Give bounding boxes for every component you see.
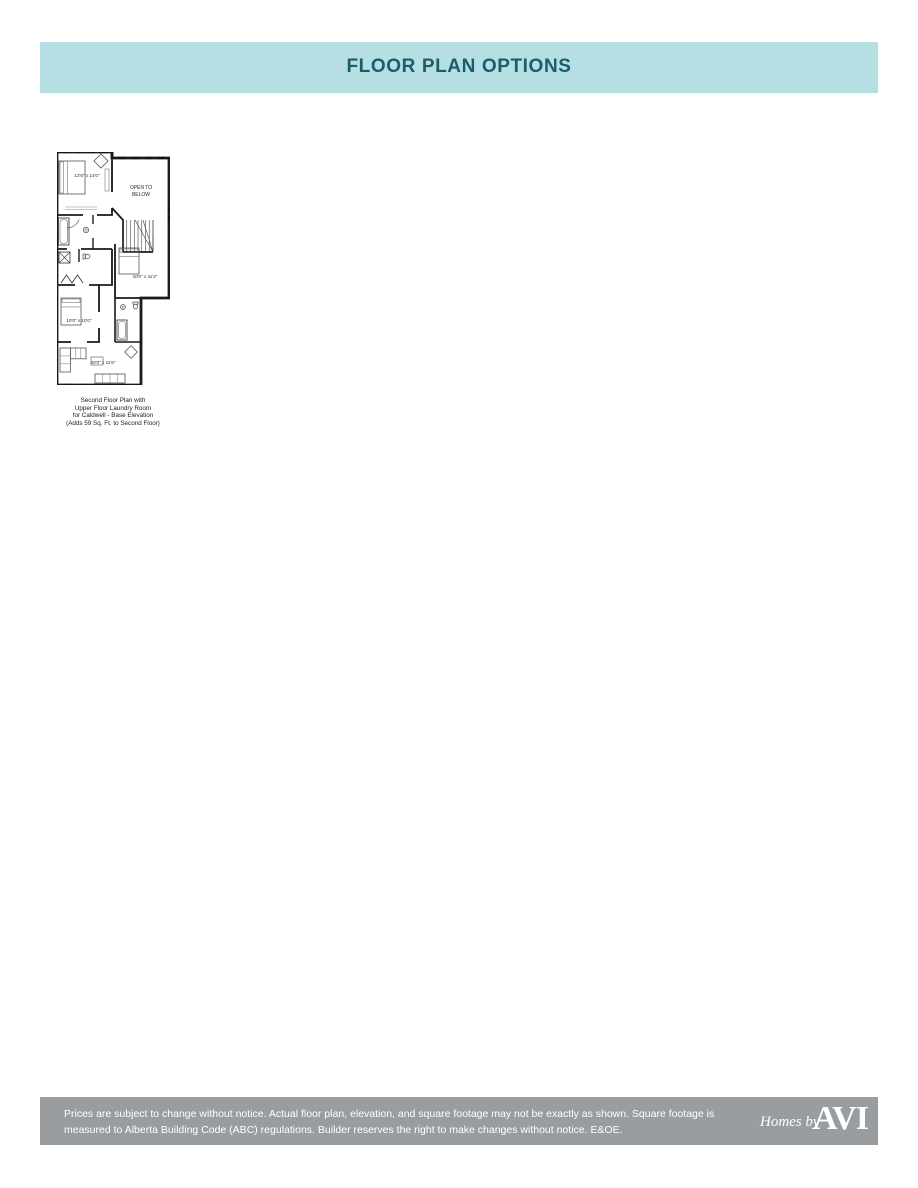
svg-text:OPEN TO: OPEN TO <box>130 185 152 191</box>
svg-text:BELOW: BELOW <box>132 192 150 198</box>
svg-text:12'6" x 14'0": 12'6" x 14'0" <box>74 173 100 178</box>
svg-text:10'0" x 10'0": 10'0" x 10'0" <box>66 318 92 323</box>
svg-text:10'0" x 11'2": 10'0" x 11'2" <box>133 274 158 279</box>
